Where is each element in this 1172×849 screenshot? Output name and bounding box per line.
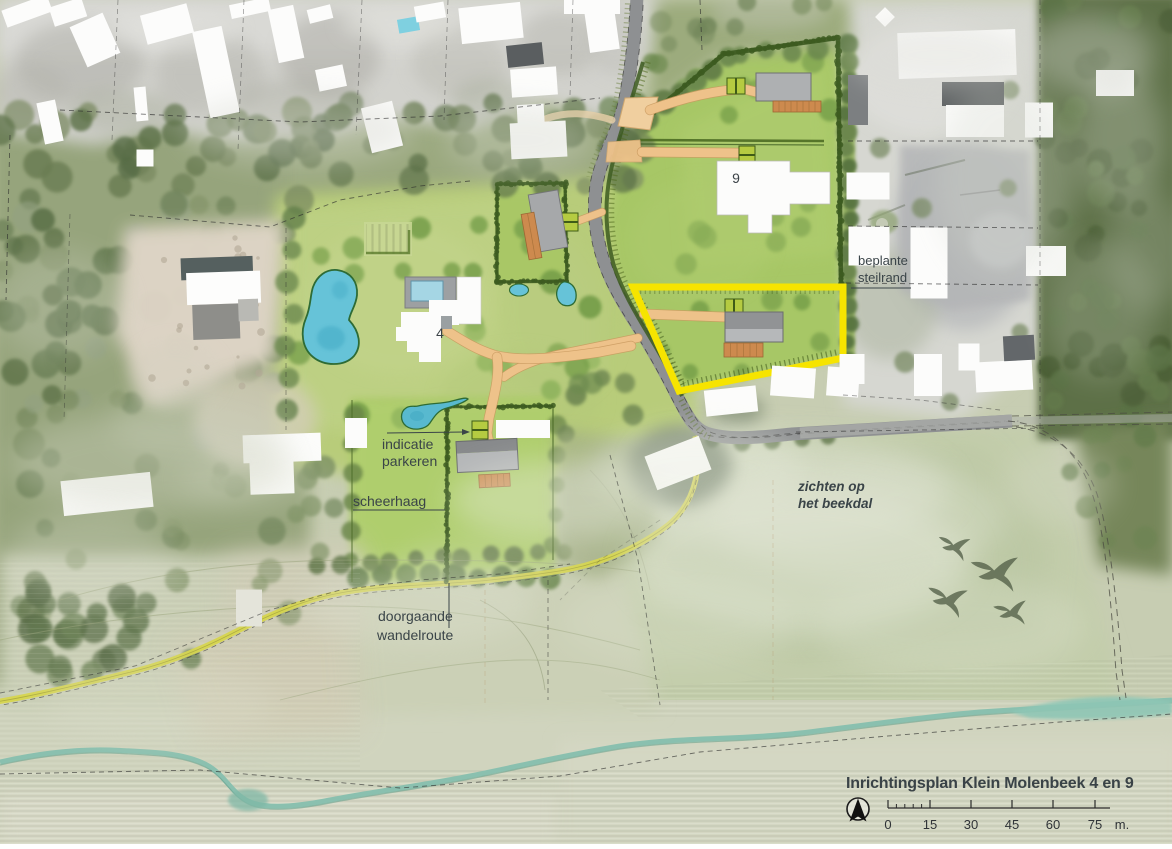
svg-text:45: 45 bbox=[1005, 817, 1019, 832]
svg-text:60: 60 bbox=[1046, 817, 1060, 832]
svg-text:scheerhaag: scheerhaag bbox=[353, 493, 426, 509]
svg-text:4: 4 bbox=[436, 325, 444, 341]
svg-text:het beekdal: het beekdal bbox=[798, 496, 873, 511]
svg-text:9: 9 bbox=[732, 170, 740, 186]
svg-text:parkeren: parkeren bbox=[382, 453, 437, 469]
svg-text:30: 30 bbox=[964, 817, 978, 832]
svg-text:beplante: beplante bbox=[858, 253, 908, 268]
svg-text:steilrand: steilrand bbox=[858, 270, 907, 285]
svg-text:wandelroute: wandelroute bbox=[376, 627, 453, 643]
svg-text:15: 15 bbox=[923, 817, 937, 832]
svg-text:0: 0 bbox=[884, 817, 891, 832]
svg-text:indicatie: indicatie bbox=[382, 436, 434, 452]
svg-text:Inrichtingsplan Klein Molenbee: Inrichtingsplan Klein Molenbeek 4 en 9 bbox=[846, 775, 1134, 792]
svg-text:75: 75 bbox=[1088, 817, 1102, 832]
svg-text:doorgaande: doorgaande bbox=[378, 608, 453, 624]
svg-text:zichten op: zichten op bbox=[797, 479, 865, 494]
svg-text:m.: m. bbox=[1115, 817, 1129, 832]
